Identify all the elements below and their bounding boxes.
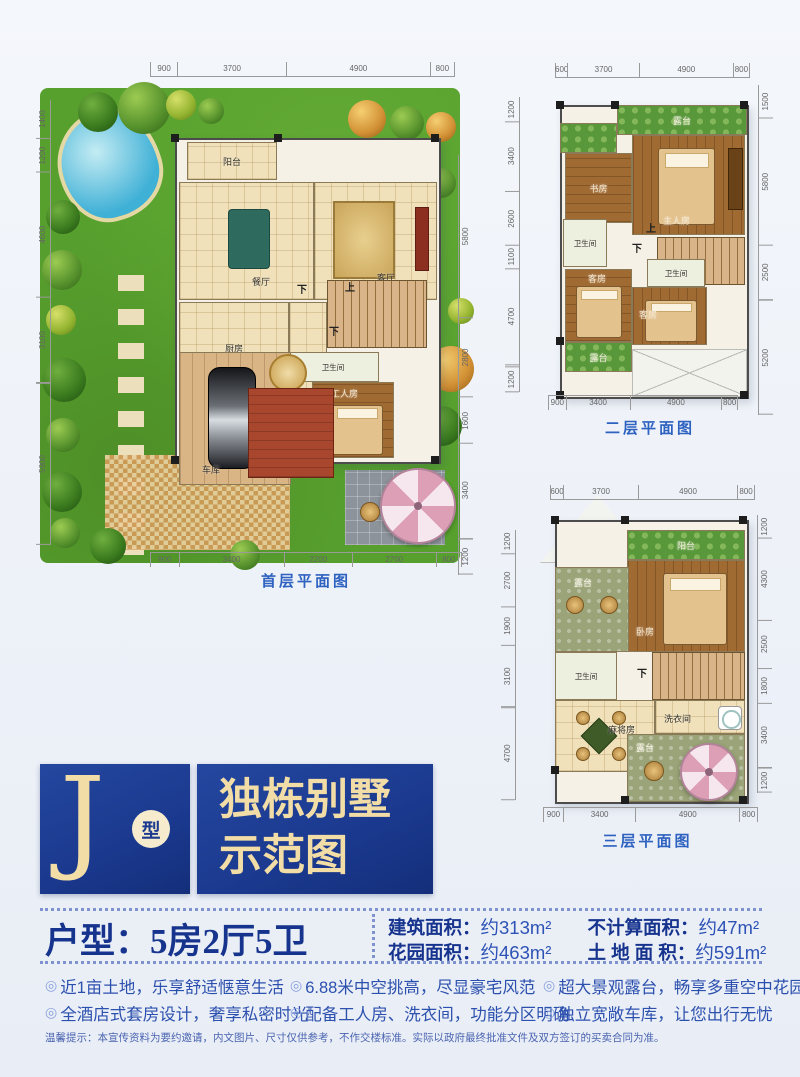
room-balcony: 阳台 (187, 142, 277, 180)
third-floor-plan: 阳台 卧房 露台 卫生间 下 麻将房 (495, 475, 800, 873)
pillar (551, 516, 559, 524)
tree-icon (50, 518, 80, 548)
pillar (739, 796, 747, 804)
dims-left: 1200 3400 2600 1100 4700 1200 (505, 97, 520, 392)
pillar (171, 456, 179, 464)
title-line-2: 示范图 (219, 829, 433, 885)
feature-item: ◎配备工人房、洗衣间，功能分区明确 (290, 999, 569, 1026)
dims-left: 1400 1200 4600 3100 5900 (36, 100, 51, 545)
stair-label-down: 下 (632, 245, 642, 255)
bedroom-bed (663, 573, 727, 645)
room-guest-1: 客房 (565, 269, 632, 342)
room-guest-2: 客房 (632, 287, 707, 345)
room-master: 主人房 (632, 135, 745, 235)
tree-icon (198, 98, 224, 124)
pillar (274, 134, 282, 142)
feature-column-2: ◎6.88米中空挑高，尽显豪宅风范 ◎配备工人房、洗衣间，功能分区明确 (290, 972, 569, 1026)
pillar (611, 101, 619, 109)
tree-icon (46, 418, 80, 452)
pillar (556, 101, 564, 109)
guest-bed (576, 286, 622, 338)
mahjong-chair (576, 711, 590, 725)
poster-page: 阳台 餐厅 客厅 厨房 下 上 下 卫生间 工人房 车库 (0, 0, 800, 1077)
pillar (551, 766, 559, 774)
bullet-icon: ◎ (543, 1004, 555, 1021)
area-stats: 建筑面积：约313m² 花园面积：约463m² 不计算面积：约47m² 土 地 … (388, 914, 766, 964)
tree-icon (90, 528, 126, 564)
feature-item: ◎全酒店式套房设计，奢享私密时光 (45, 999, 308, 1026)
dims-bottom: 900 3400 4900 800 (543, 807, 758, 822)
feature-item: ◎近1亩土地，乐享舒适惬意生活 (45, 972, 308, 999)
pillar (621, 796, 629, 804)
second-floor-caption: 二层平面图 (500, 417, 800, 438)
guest-bed (645, 300, 697, 342)
first-floor-plan: 阳台 餐厅 客厅 厨房 下 上 下 卫生间 工人房 车库 (30, 50, 500, 610)
room-study: 书房 (565, 153, 632, 223)
feature-item: ◎6.88米中空挑高，尽显豪宅风范 (290, 972, 569, 999)
bullet-icon: ◎ (290, 1004, 302, 1021)
dims-top: 600 3700 4900 800 (555, 63, 750, 78)
stair-label-down: 下 (297, 286, 307, 296)
dims-right: 5800 2800 1600 3400 1200 (458, 155, 473, 575)
dotted-divider-vertical (372, 914, 375, 958)
room-balcony: 阳台 (627, 530, 745, 560)
terrace-pot (644, 761, 664, 781)
layout-title: 户型：5房2厅5卫 (45, 913, 308, 964)
pillar (171, 134, 179, 142)
dotted-divider-bottom (40, 961, 762, 964)
roof-outline (632, 349, 747, 397)
stair-label-up: 上 (646, 225, 656, 235)
dims-top: 600 3700 4900 800 (550, 485, 755, 500)
tree-icon (390, 106, 424, 140)
pillar (621, 516, 629, 524)
patio-pot (360, 502, 380, 522)
dims-right: 1200 4300 2500 1800 3400 1200 (757, 515, 772, 793)
feature-item: ◎独立宽敞车库，让您出行无忧 (543, 999, 800, 1026)
stair-label-up: 上 (345, 284, 355, 294)
type-circle-badge: 型 (132, 810, 170, 848)
dims-right: 1500 5800 2500 5200 (758, 85, 773, 415)
mahjong-chair (576, 747, 590, 761)
room-terrace-bottom: 露台 (565, 342, 632, 372)
bullet-icon: ◎ (290, 977, 302, 994)
wardrobe (728, 148, 743, 210)
room-laundry: 洗衣间 (655, 700, 745, 734)
patio-umbrella-icon (380, 468, 456, 544)
second-floor-plan: 露台 书房 主人房 上 下 卫生间 卫生间 客房 客房 露台 (500, 55, 800, 455)
dims-left: 1200 2700 1900 3100 4700 (501, 530, 516, 800)
stairs (652, 652, 745, 700)
feature-column-3: ◎超大景观露台，畅享多重空中花园 ◎独立宽敞车库，让您出行无忧 (543, 972, 800, 1026)
feature-column-1: ◎近1亩土地，乐享舒适惬意生活 ◎全酒店式套房设计，奢享私密时光 (45, 972, 308, 1026)
pillar (431, 134, 439, 142)
entrance-steps (248, 388, 334, 478)
bullet-icon: ◎ (543, 977, 555, 994)
foyer-medallion (269, 354, 307, 392)
stair-label-down: 下 (637, 670, 647, 680)
pillar (740, 101, 748, 109)
second-floor-house: 露台 书房 主人房 上 下 卫生间 卫生间 客房 客房 露台 (560, 105, 749, 399)
terrace-chair (566, 596, 584, 614)
sofa (415, 207, 429, 271)
room-bathroom-2: 卫生间 (647, 259, 705, 287)
room-bedroom: 卧房 (627, 560, 745, 652)
room-bathroom: 卫生间 (555, 652, 617, 700)
tree-icon (348, 100, 386, 138)
room-terrace-upper: 露台 (555, 567, 629, 652)
tree-icon (166, 90, 196, 120)
dotted-divider-top (40, 908, 762, 911)
dims-bottom: 900 3400 4900 800 (548, 395, 738, 410)
type-letter: J (60, 758, 105, 881)
terrace-umbrella-icon (680, 743, 738, 801)
type-badge-box: J 型 (40, 764, 190, 894)
stat-uncounted-area: 不计算面积：约47m² (587, 914, 766, 939)
room-bathroom-1: 卫生间 (563, 219, 607, 267)
mahjong-chair (612, 747, 626, 761)
bullet-icon: ◎ (45, 977, 57, 994)
dims-bottom: 900 3400 2200 2700 800 (150, 552, 462, 567)
tree-icon (78, 92, 118, 132)
title-line-1: 独栋别墅 (219, 773, 433, 829)
tree-icon (118, 82, 170, 134)
third-floor-house: 阳台 卧房 露台 卫生间 下 麻将房 (555, 520, 749, 804)
bullet-icon: ◎ (45, 1004, 57, 1021)
pillar (740, 391, 748, 399)
title-box: 独栋别墅 示范图 (197, 764, 433, 894)
first-floor-caption: 首层平面图 (150, 570, 462, 591)
living-rug (333, 201, 395, 279)
planter-box (560, 123, 617, 153)
feature-item: ◎超大景观露台，畅享多重空中花园 (543, 972, 800, 999)
pillar (431, 456, 439, 464)
washer-icon (718, 706, 742, 730)
stair-label-down2: 下 (329, 328, 339, 338)
stat-building-area: 建筑面积：约313m² (388, 914, 551, 939)
stairs (327, 280, 427, 348)
dining-table (228, 209, 270, 269)
terrace-chair (600, 596, 618, 614)
dims-top: 900 3700 4900 800 (150, 62, 455, 77)
tree-icon (46, 200, 80, 234)
disclaimer-text: 温馨提示：本宣传资料为要约邀请，内文图片、尺寸仅供参考，不作交楼标准。实际以政府… (45, 1030, 665, 1045)
room-dining: 餐厅 (179, 182, 314, 300)
worker-bed (331, 405, 383, 455)
third-floor-caption: 三层平面图 (495, 830, 800, 851)
pillar (556, 337, 564, 345)
room-terrace-lower: 露台 (627, 734, 745, 802)
pillar (739, 516, 747, 524)
room-terrace-top: 露台 (617, 105, 747, 135)
